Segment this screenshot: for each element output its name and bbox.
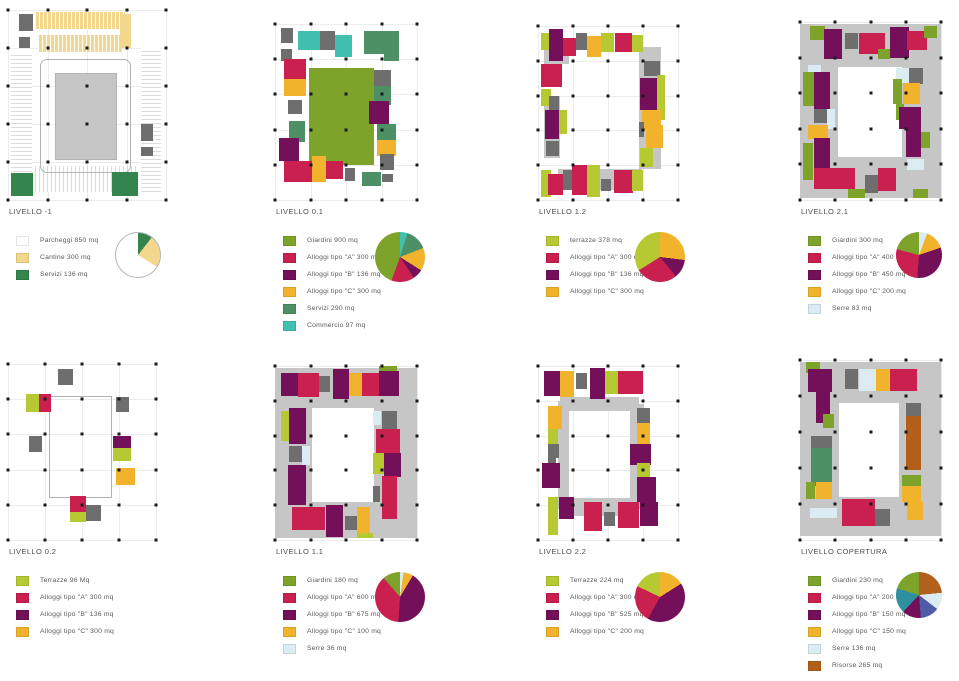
column-dot [118,539,121,542]
column-dot [904,127,907,130]
column-dot [118,363,121,366]
column-dot [537,469,540,472]
legend-swatch-purple [546,610,559,620]
legend-swatch-lime [546,236,559,246]
column-dot [869,539,872,542]
column-dot [165,47,168,50]
legend-item: Alloggi tipo "A" 300 mq [8,589,258,606]
legend-swatch-yellow [546,627,559,637]
plan-block-lime [548,497,558,516]
plan-block-lime [601,33,614,52]
column-dot [869,467,872,470]
legend-swatch-crimson [546,593,559,603]
column-dot [274,23,277,26]
column-dot [345,199,348,202]
legend-label: Alloggi tipo "C" 300 mq [570,288,644,295]
column-dot [380,23,383,26]
column-dot [86,85,89,88]
legend-swatch-olive [283,236,296,246]
column-dot [572,199,575,202]
legend-swatch-paleblue [808,644,821,654]
plan-block-gray [374,70,391,86]
plan-block-olive [803,72,814,106]
column-dot [799,431,802,434]
column-dot [86,47,89,50]
column-dot [834,431,837,434]
plan-block-crimson [298,373,319,397]
legend-swatch-crimson [283,593,296,603]
floor-plan-wrap [538,350,796,540]
column-dot [274,365,277,368]
plan-block-paleblue [302,446,311,465]
legend-swatch-purple [808,270,821,280]
column-dot [416,199,419,202]
column-dot [118,468,121,471]
column-dot [309,128,312,131]
column-dot [642,434,645,437]
column-dot [7,9,10,12]
legend-swatch-tan [16,253,29,263]
column-dot [7,199,10,202]
plan-block-crimson [890,369,917,391]
plan-block-white [839,403,898,497]
column-dot [274,58,277,61]
column-dot [799,467,802,470]
floor-plan-livello-0-2 [8,364,156,540]
column-dot [81,433,84,436]
column-dot [607,434,610,437]
column-dot [380,399,383,402]
plan-block-olive [309,68,374,165]
plan-block-gray [345,516,358,530]
panel-livello-1-2: LIVELLO 1.2terrazze 378 mqAlloggi tipo "… [538,6,796,300]
column-dot [834,163,837,166]
legend-swatch-teal [283,321,296,331]
level-label: LIVELLO 0.1 [276,207,533,216]
column-dot [607,539,610,542]
legend-label: Serre 36 mq [307,645,347,652]
plan-block-paleblue [373,411,382,425]
column-dot [309,23,312,26]
panel-livello-0-2: LIVELLO 0.2Terrazze 96 MqAlloggi tipo "A… [8,350,258,640]
plan-block-gray [29,436,42,452]
column-dot [345,163,348,166]
plan-block-purple [814,138,830,168]
legend-swatch-olive [283,576,296,586]
plan-block-seagreen [377,124,395,140]
column-dot [125,47,128,50]
plan-block-crimson [878,168,896,191]
column-dot [165,123,168,126]
legend-item: Alloggi tipo "C" 150 mq [800,623,955,640]
legend-item: Alloggi tipo "C" 300 mq [8,623,258,640]
plan-block-lime [632,35,643,52]
column-dot [345,504,348,507]
legend-item: Serre 83 mq [800,300,955,317]
grid-line [678,26,679,200]
plan-block-yellow [349,373,362,396]
legend-label: Servizi 136 mq [40,271,88,278]
legend-label: Alloggi tipo "A" 300 mq [570,254,644,261]
column-dot [125,123,128,126]
column-dot [44,503,47,506]
area-pie-chart [635,572,685,622]
column-dot [834,359,837,362]
column-dot [799,127,802,130]
plan-block-purple [369,101,389,124]
column-dot [869,359,872,362]
column-dot [677,365,680,368]
column-dot [118,433,121,436]
plan-block-lime [632,170,643,191]
column-dot [7,85,10,88]
column-dot [165,9,168,12]
plan-block-paleblue [859,369,876,391]
plan-block-crimson [376,429,400,455]
column-dot [345,539,348,542]
column-dot [904,163,907,166]
column-dot [7,161,10,164]
legend-swatch-olive [808,576,821,586]
column-dot [380,58,383,61]
column-dot [309,504,312,507]
column-dot [572,129,575,132]
floor-plan-wrap [538,6,796,200]
plan-block-crimson [618,371,643,394]
column-dot [799,92,802,95]
column-dot [869,395,872,398]
column-dot [642,199,645,202]
plan-block-purple [542,463,560,487]
column-dot [537,434,540,437]
column-dot [416,128,419,131]
plan-block-white [141,48,162,192]
column-dot [537,539,540,542]
plan-block-purple [281,373,299,396]
plan-block-olive [924,26,937,38]
legend-label: Commercio 97 mq [307,322,366,329]
plan-block-yellow [816,482,833,498]
column-dot [834,467,837,470]
column-dot [869,127,872,130]
column-dot [537,94,540,97]
plan-block-purple [559,497,574,520]
legend-label: Serre 136 mq [832,645,876,652]
legend-swatch-yellow [283,627,296,637]
plan-block-crimson [362,373,379,396]
column-dot [309,469,312,472]
column-dot [125,85,128,88]
column-dot [572,539,575,542]
column-dot [165,85,168,88]
plan-block-lime [559,110,567,134]
column-dot [46,85,49,88]
legend-swatch-lime [16,576,29,586]
plan-block-gray [546,141,559,157]
plan-block-crimson [618,502,639,528]
column-dot [904,395,907,398]
column-dot [309,434,312,437]
plan-block-gray [576,373,587,389]
column-dot [572,365,575,368]
level-label: LIVELLO 2.2 [539,547,796,556]
panel-livello-copertura: LIVELLO COPERTURAGiardini 230 mqAlloggi … [800,350,955,674]
column-dot [274,539,277,542]
plan-block-seagreen [364,31,384,54]
column-dot [165,199,168,202]
plan-block-teal [335,35,352,58]
legend-label: Alloggi tipo "A" 300 mq [307,254,381,261]
legend-label: Risorse 265 mq [832,662,882,669]
plan-block-crimson [548,174,563,195]
plan-block-olive [902,475,922,486]
floor-plan-wrap [8,350,258,540]
plan-block-crimson [284,161,312,182]
plan-block-lime [548,516,558,535]
legend-label: Giardini 180 mq [307,577,358,584]
plan-block-purple [630,444,651,465]
column-dot [537,199,540,202]
column-dot [642,365,645,368]
column-dot [345,365,348,368]
plan-block-lime [357,533,373,538]
plan-block-lime [26,394,39,412]
level-label: LIVELLO 1.1 [276,547,533,556]
legend-label: Cantine 300 mq [40,254,91,261]
plan-block-purple [279,138,299,161]
column-dot [7,539,10,542]
legend-item: Alloggi tipo "C" 200 mq [538,623,796,640]
plan-block-purple [549,29,563,60]
column-dot [46,9,49,12]
column-dot [380,163,383,166]
column-dot [834,199,837,202]
legend: terrazze 378 mqAlloggi tipo "A" 300 mqAl… [538,232,796,300]
plan-block-crimson [70,496,86,512]
grid-line [8,10,9,200]
legend-swatch-yellow [808,627,821,637]
column-dot [309,58,312,61]
column-dot [416,399,419,402]
plan-block-tan [120,14,131,48]
grid-line [538,366,539,540]
column-dot [940,467,943,470]
column-dot [118,503,121,506]
floor-plan-livello-0-1 [275,24,417,200]
column-dot [86,123,89,126]
column-dot [904,431,907,434]
panel-livello-1-1: LIVELLO 1.1Giardini 180 mqAlloggi tipo "… [275,350,533,657]
column-dot [799,539,802,542]
column-dot [799,21,802,24]
column-dot [345,469,348,472]
column-dot [572,164,575,167]
column-dot [380,469,383,472]
plan-block-yellow [284,79,307,97]
plan-block-gray [288,100,302,114]
plan-block-gray [845,33,858,49]
column-dot [904,92,907,95]
grid-line [166,10,167,200]
plan-block-purple [890,27,908,57]
column-dot [834,127,837,130]
floor-plan-wrap [8,6,258,200]
column-dot [940,395,943,398]
column-dot [309,365,312,368]
plan-block-yellow [587,36,601,57]
column-dot [869,199,872,202]
column-dot [7,123,10,126]
legend-item: Serre 36 mq [275,640,533,657]
column-dot [345,434,348,437]
legend-item: Alloggi tipo "B" 136 mq [8,606,258,623]
legend-swatch-paleblue [808,304,821,314]
column-dot [677,59,680,62]
column-dot [642,504,645,507]
legend-label: Alloggi tipo "C" 100 mq [307,628,381,635]
legend-label: Alloggi tipo "A" 600 mq [307,594,381,601]
level-label: LIVELLO 0.2 [9,547,258,556]
plan-block-gray [576,33,587,50]
area-pie-chart [896,572,942,618]
grid-line [941,22,942,200]
column-dot [345,128,348,131]
column-dot [572,94,575,97]
legend-item: Alloggi tipo "C" 100 mq [275,623,533,640]
legend: Giardini 180 mqAlloggi tipo "A" 600 mqAl… [275,572,533,657]
column-dot [86,161,89,164]
legend-swatch-purple [16,610,29,620]
column-dot [309,163,312,166]
plan-block-gray [281,28,294,44]
legend-label: Servizi 290 mq [307,305,355,312]
level-label: LIVELLO COPERTURA [801,547,955,556]
column-dot [677,539,680,542]
legend-swatch-crimson [808,593,821,603]
plan-block-tan [38,35,122,52]
column-dot [572,399,575,402]
legend-item: Servizi 290 mq [275,300,533,317]
column-dot [274,434,277,437]
column-dot [940,199,943,202]
plan-block-yellow [907,502,923,520]
legend-swatch-seagreen [283,304,296,314]
plan-block-crimson [615,33,632,52]
column-dot [165,161,168,164]
plan-block-crimson [614,170,634,193]
column-dot [607,59,610,62]
column-dot [380,539,383,542]
column-dot [81,363,84,366]
plan-block-white [11,52,32,193]
column-dot [642,25,645,28]
column-dot [44,398,47,401]
column-dot [940,21,943,24]
legend: Giardini 900 mqAlloggi tipo "A" 300 mqAl… [275,232,533,334]
legend-label: Alloggi tipo "C" 200 mq [570,628,644,635]
plan-block-purple [113,436,131,448]
column-dot [46,47,49,50]
legend: Parcheggi 850 mqCantine 300 mqServizi 13… [8,232,258,292]
column-dot [416,539,419,542]
column-dot [155,433,158,436]
plan-block-crimson [284,59,307,78]
legend-swatch-yellow [546,287,559,297]
legend-swatch-yellow [808,287,821,297]
legend-label: terrazze 378 mq [570,237,622,244]
plan-block-purple [289,408,306,445]
column-dot [799,56,802,59]
column-dot [274,93,277,96]
grid-line [941,360,942,540]
plan-block-gray [86,505,101,521]
column-dot [44,539,47,542]
column-dot [642,164,645,167]
plan-block-darkgreen [11,173,33,196]
legend-label: Alloggi tipo "C" 300 mq [40,628,114,635]
legend-label: Parcheggi 850 mq [40,237,98,244]
legend-label: Alloggi tipo "B" 150 mq [832,611,906,618]
plan-block-purple [333,369,349,399]
plan-block-purple [545,110,559,140]
plan-block-purple [814,72,830,109]
column-dot [799,395,802,398]
column-dot [81,539,84,542]
drawing-sheet: LIVELLO -1Parcheggi 850 mqCantine 300 mq… [0,0,959,681]
column-dot [607,164,610,167]
plan-block-crimson [541,64,562,87]
plan-block-crimson [584,502,602,532]
plan-block-none [49,396,111,498]
column-dot [940,127,943,130]
plan-block-olive [893,79,901,104]
column-dot [118,398,121,401]
column-dot [642,539,645,542]
legend-label: Alloggi tipo "B" 450 mq [832,271,906,278]
plan-block-purple [544,371,561,395]
plan-block-crimson [39,394,51,412]
floor-plan-livello-1-2 [538,26,678,200]
column-dot [904,199,907,202]
column-dot [537,164,540,167]
column-dot [44,433,47,436]
plan-block-gray [380,154,394,170]
plan-block-lime [113,448,131,460]
column-dot [677,434,680,437]
legend-item: Risorse 265 mq [800,657,955,674]
area-pie-chart [635,232,685,282]
column-dot [940,503,943,506]
column-dot [799,503,802,506]
column-dot [572,434,575,437]
plan-block-gray [865,175,878,193]
legend-swatch-yellow [283,287,296,297]
column-dot [380,504,383,507]
plan-block-gray [637,408,650,424]
plan-block-teal [298,31,321,50]
column-dot [274,128,277,131]
column-dot [537,399,540,402]
column-dot [155,363,158,366]
legend-label: Alloggi tipo "B" 136 mq [307,271,381,278]
plan-block-purple [906,125,922,157]
column-dot [677,94,680,97]
plan-block-paleblue [810,508,837,519]
plan-block-gray [345,168,355,180]
column-dot [537,25,540,28]
column-dot [416,23,419,26]
column-dot [274,199,277,202]
